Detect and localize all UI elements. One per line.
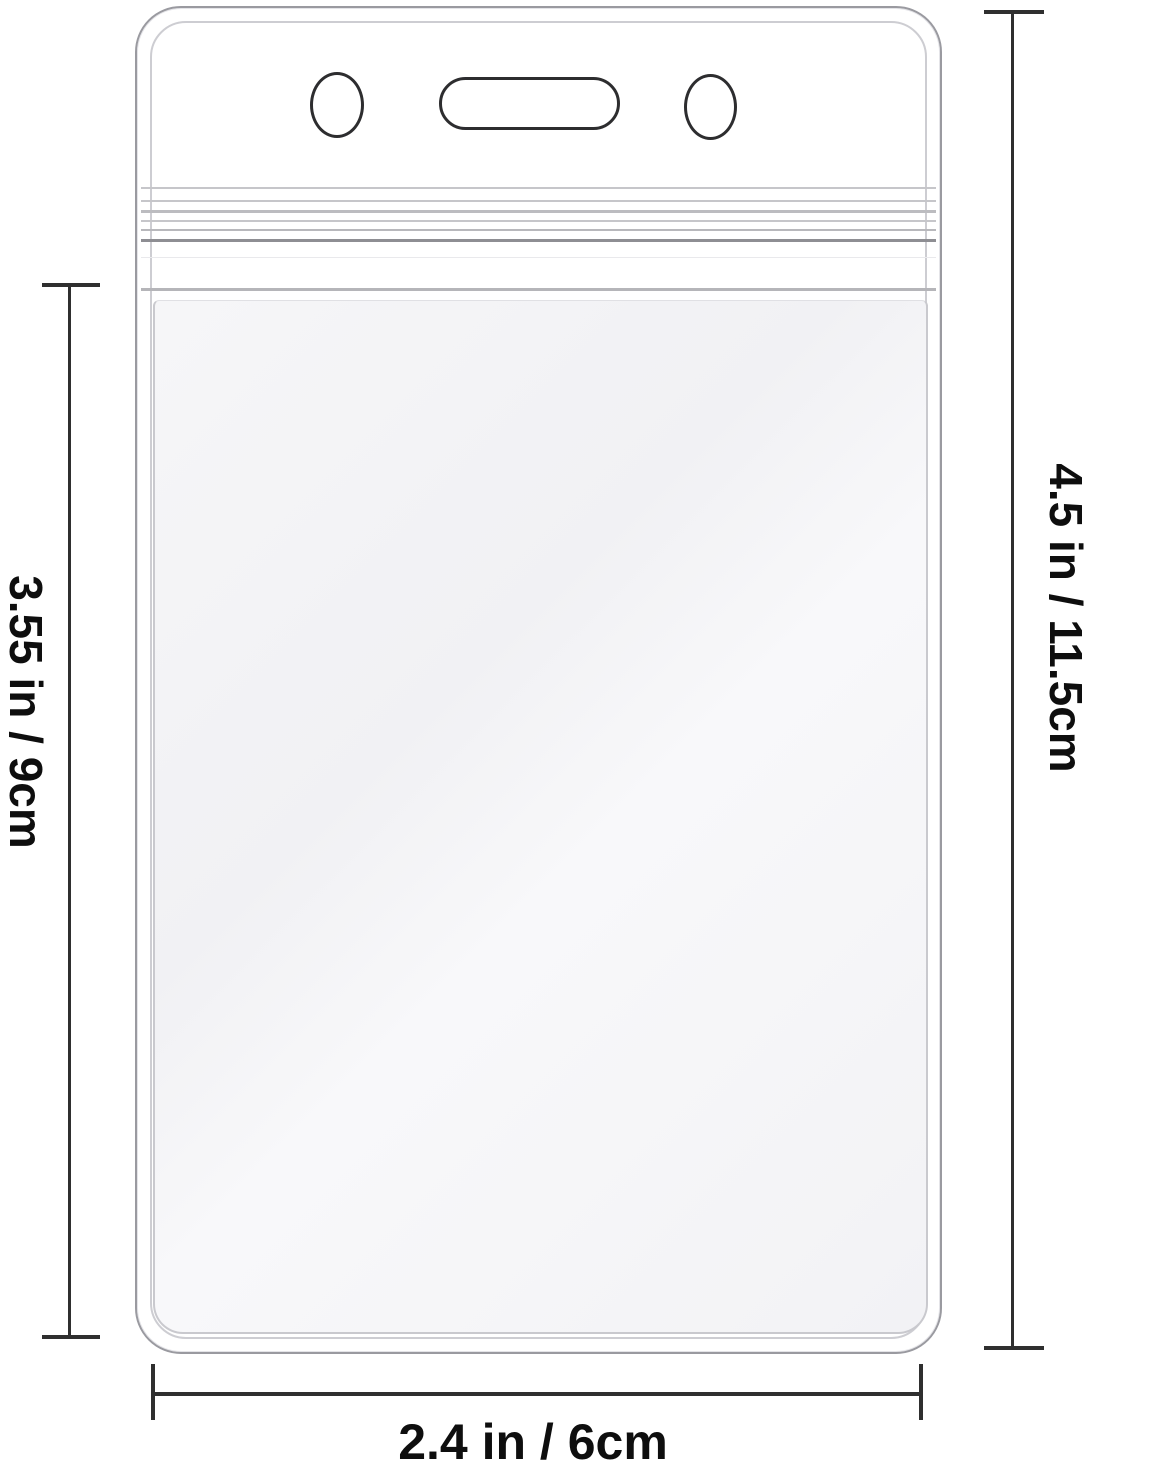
seal-line bbox=[141, 257, 936, 258]
product-dimension-diagram: 3.55 in / 9cm 4.5 in / 11.5cm 2.4 in / 6… bbox=[0, 0, 1160, 1466]
seal-line bbox=[141, 187, 936, 189]
overall-width-label: 2.4 in / 6cm bbox=[398, 1413, 668, 1466]
seal-line bbox=[141, 229, 936, 231]
left-round-hole bbox=[310, 72, 364, 138]
right-dimension-line bbox=[1011, 11, 1014, 1349]
right-dimension-cap-bottom bbox=[984, 1346, 1044, 1350]
bottom-dimension-line bbox=[153, 1392, 923, 1396]
right-round-hole bbox=[684, 74, 737, 140]
zip-seal-line bbox=[141, 239, 936, 242]
left-dimension-line bbox=[68, 284, 71, 1338]
left-dimension-cap-bottom bbox=[42, 1335, 100, 1339]
bottom-dimension-cap-right bbox=[919, 1364, 923, 1420]
seal-line bbox=[141, 288, 936, 291]
seal-line bbox=[141, 200, 936, 202]
pocket-height-label: 3.55 in / 9cm bbox=[0, 575, 53, 849]
overall-height-label: 4.5 in / 11.5cm bbox=[1039, 463, 1093, 772]
seal-line bbox=[141, 220, 936, 222]
left-dimension-cap-top bbox=[42, 283, 100, 287]
seal-line bbox=[141, 210, 936, 213]
card-pocket bbox=[153, 300, 928, 1334]
lanyard-slot-hole bbox=[439, 77, 620, 130]
bottom-dimension-cap-left bbox=[151, 1364, 155, 1420]
badge-holder-outline bbox=[135, 6, 942, 1354]
right-dimension-cap-top bbox=[984, 10, 1044, 14]
